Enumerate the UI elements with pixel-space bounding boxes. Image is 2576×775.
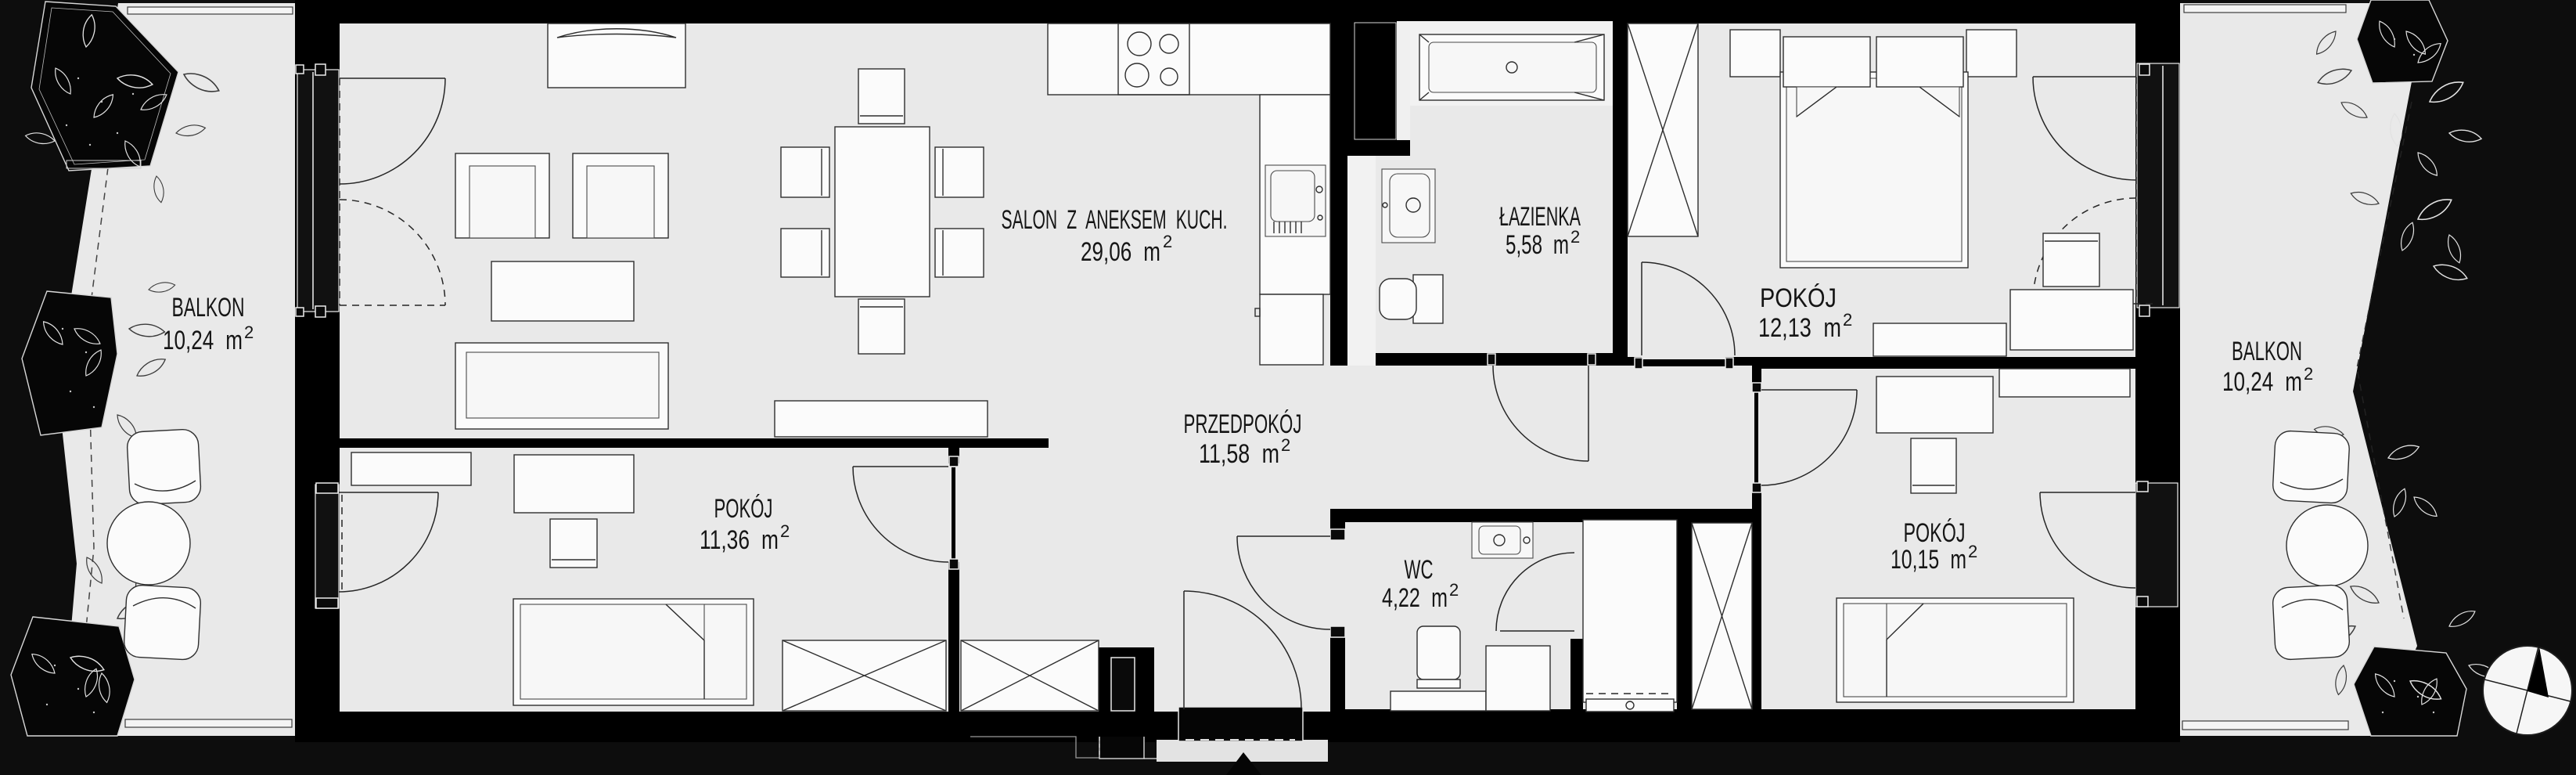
svg-text:2: 2 bbox=[1968, 542, 1977, 561]
svg-text:2: 2 bbox=[1570, 227, 1580, 247]
svg-text:WC: WC bbox=[1405, 555, 1434, 585]
svg-text:4,22 m: 4,22 m bbox=[1382, 583, 1448, 613]
svg-text:SALON Z ANEKSEM KUCH.: SALON Z ANEKSEM KUCH. bbox=[1002, 205, 1228, 235]
svg-text:11,36 m: 11,36 m bbox=[700, 525, 779, 555]
svg-text:BALKON: BALKON bbox=[2232, 337, 2302, 366]
svg-text:2: 2 bbox=[1281, 435, 1290, 455]
svg-text:2: 2 bbox=[2304, 364, 2313, 384]
svg-text:10,15 m: 10,15 m bbox=[1891, 545, 1966, 575]
svg-text:11,58 m: 11,58 m bbox=[1199, 439, 1279, 469]
svg-text:2: 2 bbox=[1843, 310, 1852, 330]
svg-text:10,24 m: 10,24 m bbox=[2222, 367, 2302, 397]
svg-text:ŁAZIENKA: ŁAZIENKA bbox=[1499, 202, 1581, 232]
svg-text:2: 2 bbox=[244, 323, 254, 342]
svg-text:2: 2 bbox=[780, 521, 790, 541]
svg-text:POKÓJ: POKÓJ bbox=[714, 494, 773, 524]
svg-text:2: 2 bbox=[1449, 580, 1459, 600]
svg-text:BALKON: BALKON bbox=[172, 293, 245, 323]
svg-text:29,06 m: 29,06 m bbox=[1081, 237, 1160, 267]
svg-text:POKÓJ: POKÓJ bbox=[1904, 518, 1966, 548]
svg-text:12,13 m: 12,13 m bbox=[1758, 313, 1841, 343]
svg-text:10,24 m: 10,24 m bbox=[163, 326, 243, 355]
svg-text:2: 2 bbox=[1163, 232, 1172, 251]
svg-text:5,58 m: 5,58 m bbox=[1506, 230, 1569, 260]
svg-text:POKÓJ: POKÓJ bbox=[1760, 283, 1837, 313]
